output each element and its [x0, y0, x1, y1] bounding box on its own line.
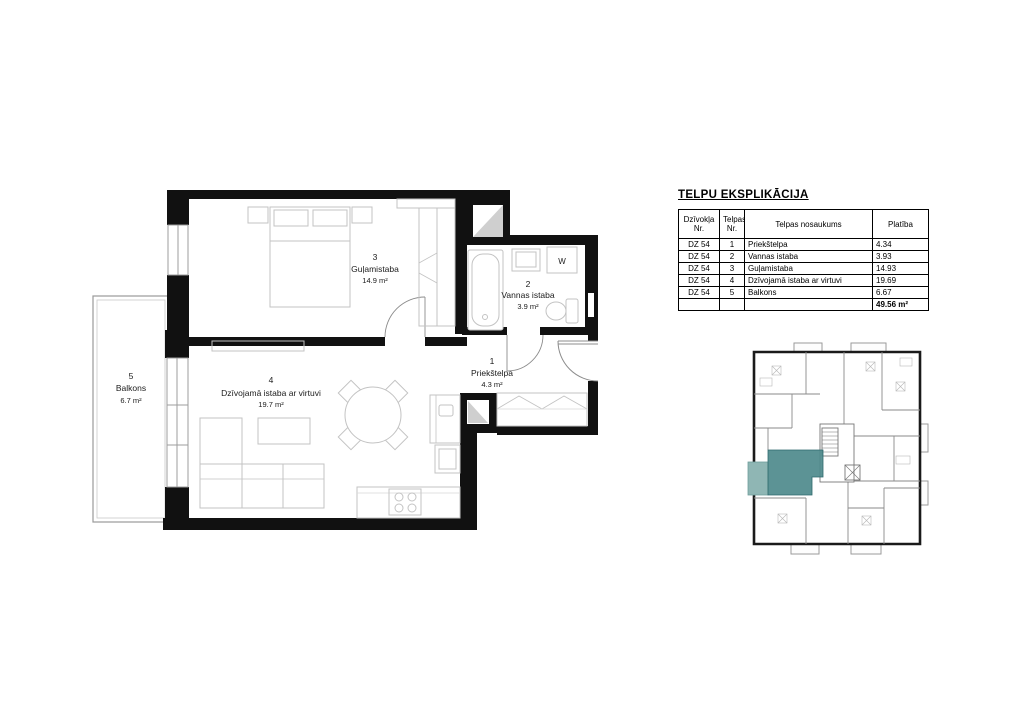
cell-nr-empty [720, 299, 745, 311]
cell-nr: 5 [720, 287, 745, 299]
explication-panel: TELPU EKSPLIKĀCIJA Dzīvokļa Nr. Telpas N… [678, 189, 934, 311]
entrance-door [558, 341, 598, 381]
explication-table: Dzīvokļa Nr. Telpas Nr. Telpas nosaukums… [678, 209, 929, 311]
room-name: Guļamistaba [351, 264, 399, 274]
room-area: 3.9 m² [517, 302, 539, 311]
table-row: DZ 54 3 Guļamistaba 14.93 [679, 263, 929, 275]
washing-machine: W [547, 247, 577, 273]
cell-dz-empty [679, 299, 720, 311]
room-number: 3 [373, 252, 378, 262]
room-area: 4.3 m² [481, 380, 503, 389]
cell-dz: DZ 54 [679, 275, 720, 287]
header-row: Dzīvokļa Nr. Telpas Nr. Telpas nosaukums… [679, 210, 929, 239]
balcony [93, 296, 169, 522]
cell-name: Balkons [745, 287, 873, 299]
cell-name: Guļamistaba [745, 263, 873, 275]
room-area: 6.7 m² [120, 396, 142, 405]
sink [512, 249, 540, 271]
room-label-vannas-istaba: 2 Vannas istaba 3.9 m² [501, 279, 555, 311]
room-number: 4 [269, 375, 274, 385]
cell-dz: DZ 54 [679, 239, 720, 251]
room-area: 14.9 m² [362, 276, 388, 285]
room-name: Priekštelpa [471, 368, 513, 378]
building-overview [744, 338, 930, 558]
bed [248, 207, 372, 307]
hall-wardrobe [497, 393, 587, 426]
table-row: DZ 54 5 Balkons 6.67 [679, 287, 929, 299]
room-number: 2 [526, 279, 531, 289]
explication-title: TELPU EKSPLIKĀCIJA [678, 189, 934, 201]
cell-area: 6.67 [873, 287, 929, 299]
cell-dz: DZ 54 [679, 287, 720, 299]
highlighted-apartment-balcony [748, 462, 768, 495]
col-header-telpas-nosaukums: Telpas nosaukums [745, 210, 873, 239]
dining-table [338, 380, 407, 449]
room-label-gulamistaba: 3 Guļamistaba 14.9 m² [351, 252, 399, 285]
room-number: 5 [129, 371, 134, 381]
room-label-dzivojama-istaba: 4 Dzīvojamā istaba ar virtuvi 19.7 m² [221, 375, 321, 409]
room-area: 19.7 m² [258, 400, 284, 409]
washer-label: W [558, 257, 566, 266]
cell-nr: 4 [720, 275, 745, 287]
page-root: W [0, 0, 1024, 723]
cell-nr: 3 [720, 263, 745, 275]
room-name: Vannas istaba [501, 290, 555, 300]
col-header-telpas-nr: Telpas Nr. [720, 210, 745, 239]
cell-name-empty [745, 299, 873, 311]
col-header-platiba: Platība [873, 210, 929, 239]
cell-area: 3.93 [873, 251, 929, 263]
bathtub [468, 250, 503, 330]
col-header-dzivokla-nr: Dzīvokļa Nr. [679, 210, 720, 239]
cell-dz: DZ 54 [679, 251, 720, 263]
cell-name: Priekštelpa [745, 239, 873, 251]
cell-total-area: 49.56 m² [873, 299, 929, 311]
cell-nr: 2 [720, 251, 745, 263]
apartment-floor-plan: W [85, 183, 615, 535]
cell-name: Vannas istaba [745, 251, 873, 263]
cell-area: 19.69 [873, 275, 929, 287]
toilet [546, 299, 578, 323]
cell-name: Dzīvojamā istaba ar virtuvi [745, 275, 873, 287]
cell-dz: DZ 54 [679, 263, 720, 275]
wardrobe [397, 199, 455, 326]
room-name: Dzīvojamā istaba ar virtuvi [221, 388, 321, 398]
room-number: 1 [490, 356, 495, 366]
cell-nr: 1 [720, 239, 745, 251]
table-row: DZ 54 4 Dzīvojamā istaba ar virtuvi 19.6… [679, 275, 929, 287]
cell-area: 4.34 [873, 239, 929, 251]
cell-area: 14.93 [873, 263, 929, 275]
table-row: DZ 54 2 Vannas istaba 3.93 [679, 251, 929, 263]
room-name: Balkons [116, 383, 146, 393]
coffee-table [258, 418, 310, 444]
total-row: 49.56 m² [679, 299, 929, 311]
table-row: DZ 54 1 Priekštelpa 4.34 [679, 239, 929, 251]
